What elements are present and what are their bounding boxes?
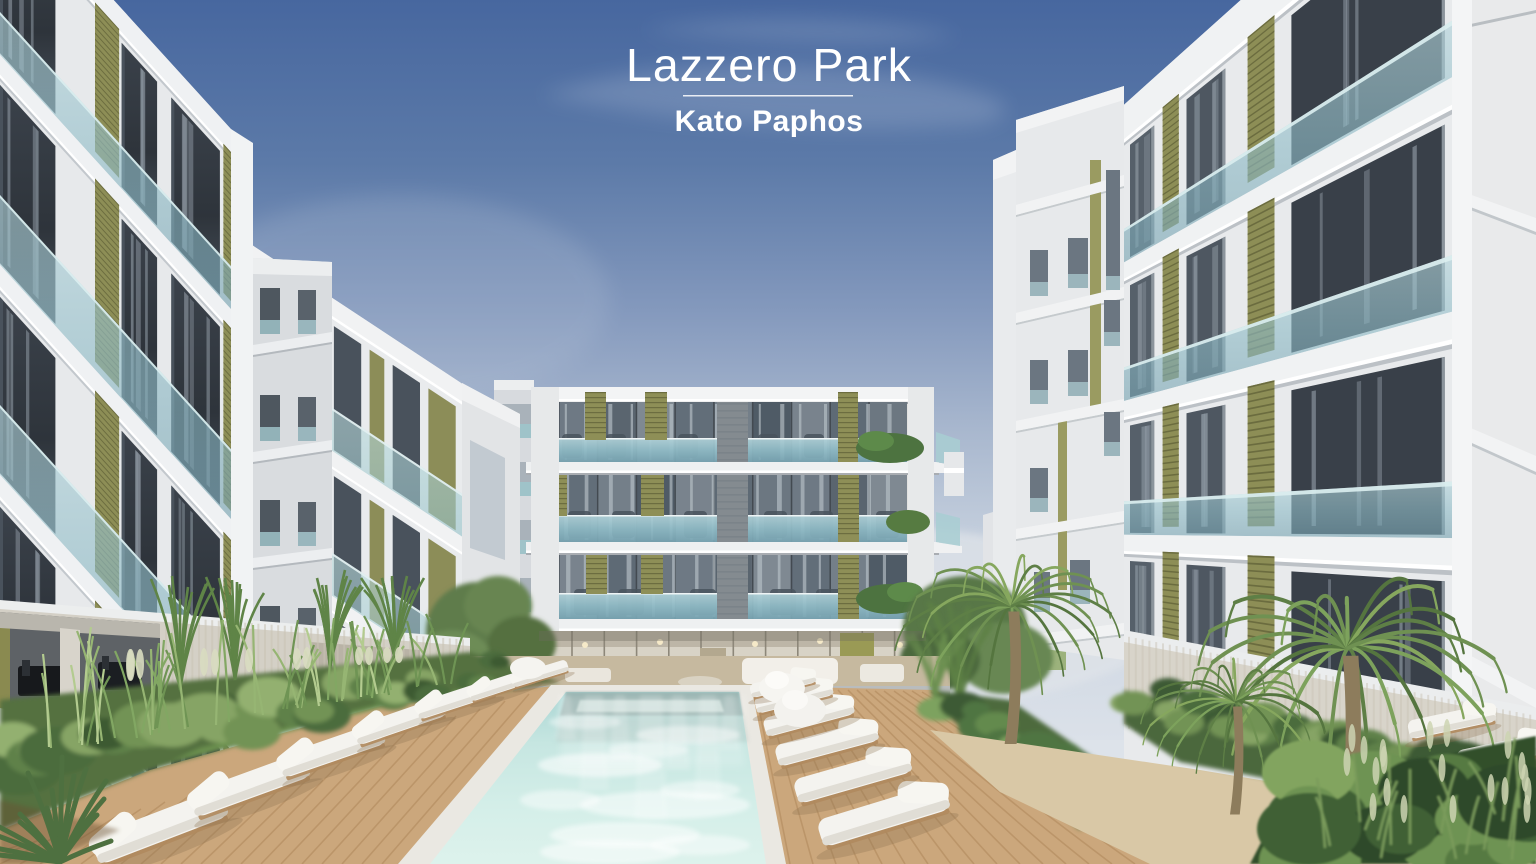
svg-text:Lazzero Park: Lazzero Park	[626, 39, 912, 91]
svg-text:Kato Paphos: Kato Paphos	[675, 105, 864, 138]
